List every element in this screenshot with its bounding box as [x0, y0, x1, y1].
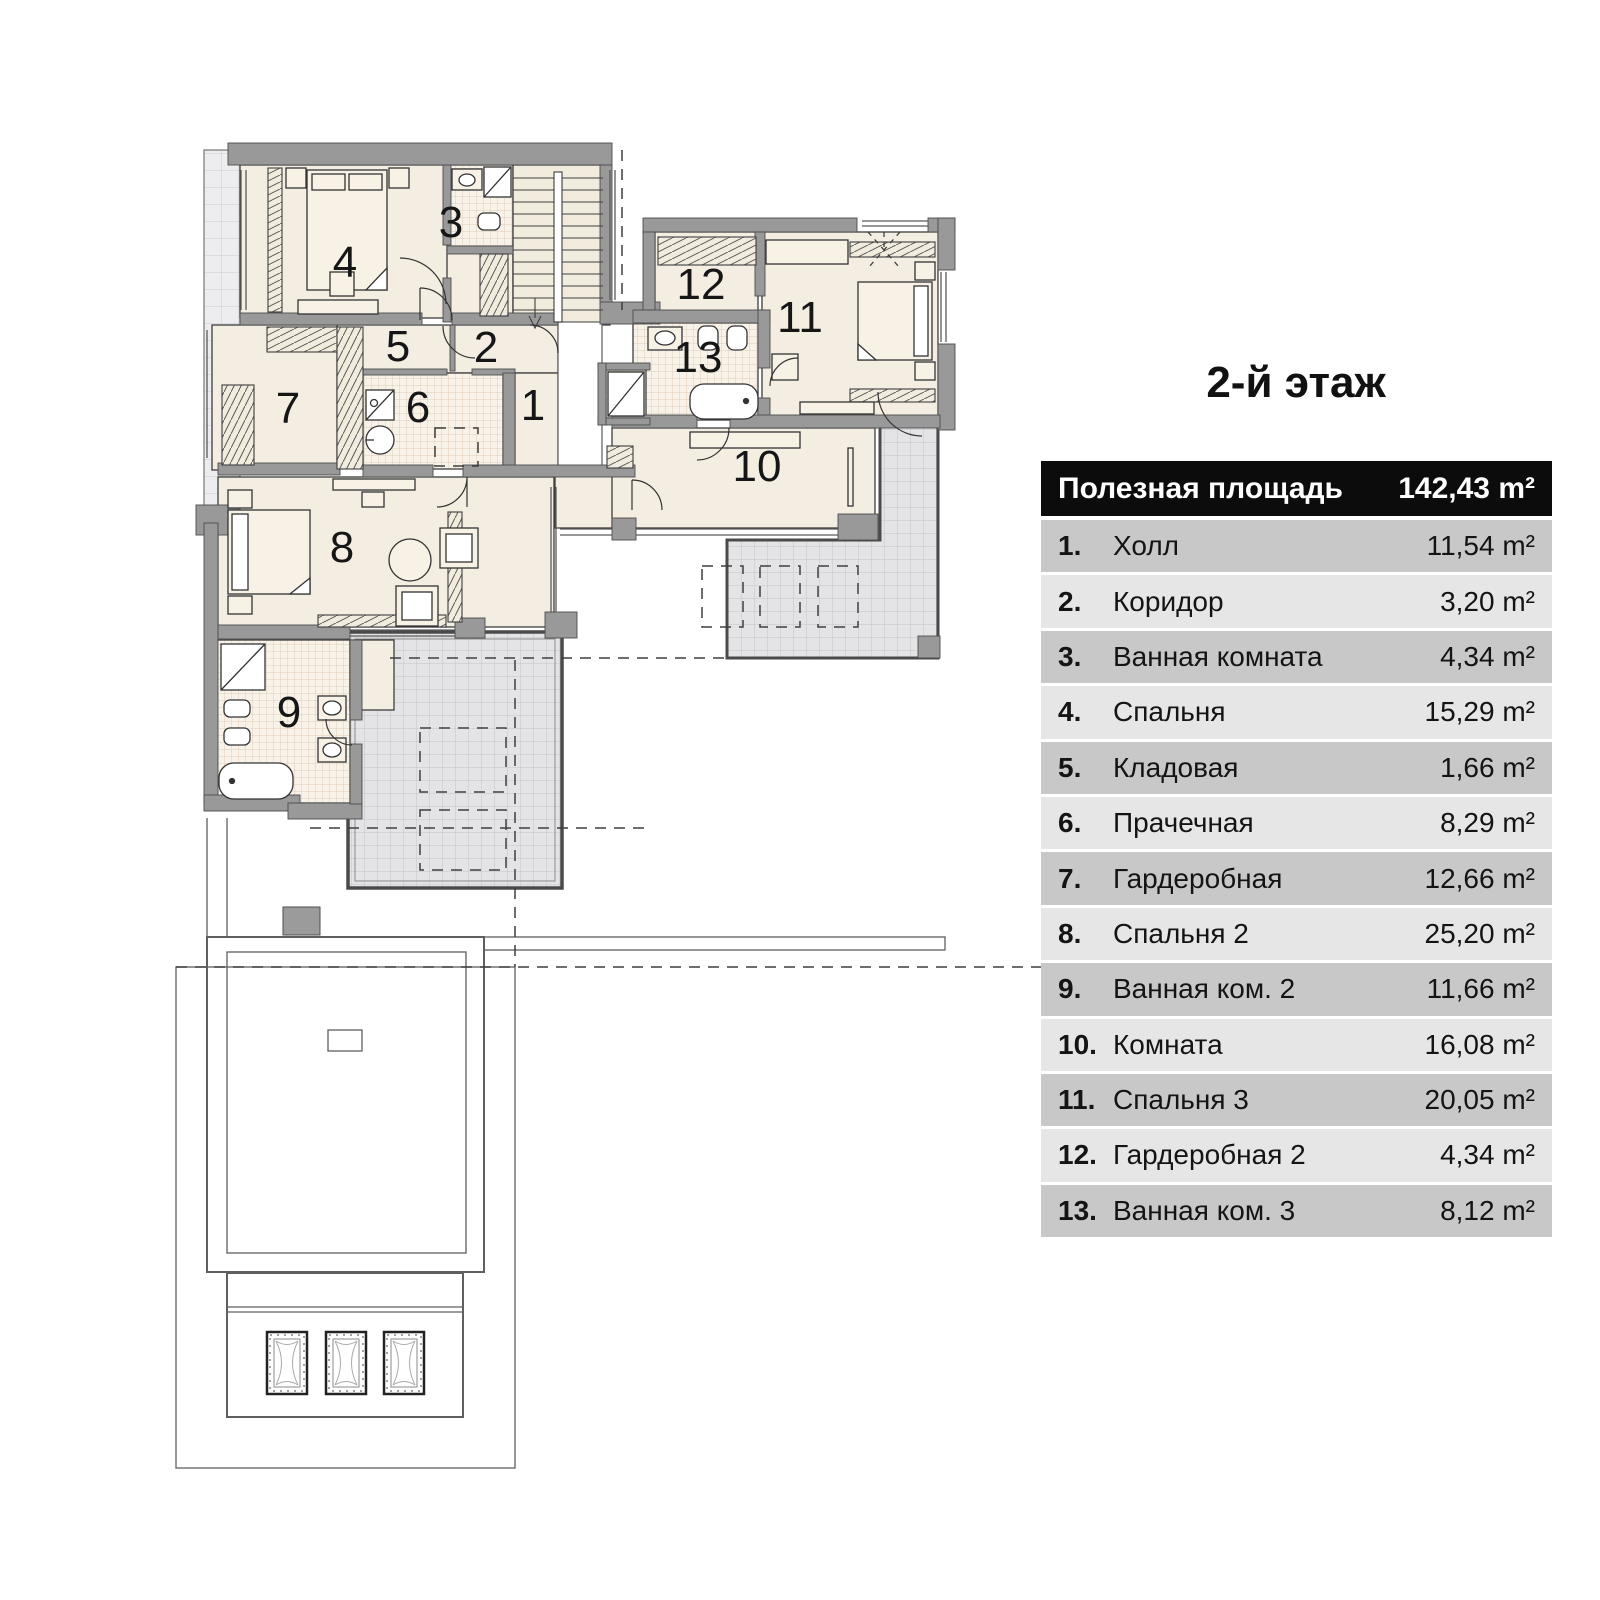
toilet-room9	[224, 728, 250, 745]
label-room-13: 13	[674, 333, 723, 382]
row-name: Гардеробная	[1113, 863, 1425, 895]
room-6-floor	[363, 373, 503, 469]
chimney	[283, 907, 320, 935]
row-name: Комната	[1113, 1029, 1425, 1061]
row-value: 1,66 m²	[1440, 752, 1552, 784]
legend-row-4: 4.Спальня15,29 m²	[1041, 686, 1552, 741]
row-value: 16,08 m²	[1425, 1029, 1553, 1061]
row-value: 4,34 m²	[1440, 641, 1552, 673]
stair-void	[558, 322, 602, 472]
skylights	[267, 1332, 424, 1394]
row-name: Ванная ком. 3	[1113, 1195, 1440, 1227]
row-num: 6.	[1041, 807, 1113, 839]
row-num: 9.	[1041, 973, 1113, 1005]
label-room-7: 7	[276, 384, 300, 433]
legend-row-13: 13.Ванная ком. 38,12 m²	[1041, 1185, 1552, 1240]
label-room-10: 10	[733, 442, 782, 491]
legend-row-6: 6.Прачечная8,29 m²	[1041, 797, 1552, 852]
legend-row-12: 12.Гардеробная 24,34 m²	[1041, 1129, 1552, 1184]
row-num: 3.	[1041, 641, 1113, 673]
label-room-5: 5	[386, 322, 410, 371]
legend-row-9: 9.Ванная ком. 211,66 m²	[1041, 963, 1552, 1018]
legend-row-8: 8.Спальня 225,20 m²	[1041, 908, 1552, 963]
shelf-room8	[333, 479, 415, 490]
row-value: 12,66 m²	[1425, 863, 1553, 895]
row-name: Спальня 2	[1113, 918, 1425, 950]
row-value: 8,29 m²	[1440, 807, 1552, 839]
row-name: Спальня 3	[1113, 1084, 1425, 1116]
legend-row-10: 10.Комната16,08 m²	[1041, 1019, 1552, 1074]
legend-header: Полезная площадь 142,43 m²	[1041, 461, 1552, 516]
legend-row-3: 3.Ванная комната4,34 m²	[1041, 631, 1552, 686]
label-room-6: 6	[406, 383, 430, 432]
legend-header-value: 142,43 m²	[1398, 472, 1535, 506]
row-value: 20,05 m²	[1425, 1084, 1553, 1116]
bench-room11	[800, 402, 874, 414]
row-num: 7.	[1041, 863, 1113, 895]
toilet-room3	[478, 213, 500, 230]
label-room-3: 3	[439, 198, 463, 247]
table-room8	[389, 539, 431, 581]
legend-row-5: 5.Кладовая1,66 m²	[1041, 742, 1552, 797]
label-room-8: 8	[330, 523, 354, 572]
row-num: 5.	[1041, 752, 1113, 784]
row-value: 8,12 m²	[1440, 1195, 1552, 1227]
legend-row-1: 1.Холл11,54 m²	[1041, 520, 1552, 575]
row-value: 4,34 m²	[1440, 1139, 1552, 1171]
row-num: 13.	[1041, 1195, 1113, 1227]
shelf-room11	[766, 240, 848, 264]
label-room-11: 11	[777, 293, 823, 342]
row-name: Кладовая	[1113, 752, 1440, 784]
row-name: Спальня	[1113, 696, 1425, 728]
row-num: 10.	[1041, 1029, 1113, 1061]
row-value: 11,66 m²	[1427, 973, 1552, 1005]
label-room-12: 12	[677, 260, 726, 309]
row-value: 25,20 m²	[1425, 918, 1553, 950]
row-num: 11.	[1041, 1084, 1113, 1116]
row-num: 8.	[1041, 918, 1113, 950]
row-value: 3,20 m²	[1440, 586, 1552, 618]
row-num: 2.	[1041, 586, 1113, 618]
label-room-2: 2	[474, 323, 498, 372]
row-name: Ванная комната	[1113, 641, 1440, 673]
desk-room4	[298, 300, 378, 314]
row-value: 15,29 m²	[1425, 696, 1553, 728]
bidet-room9	[224, 700, 250, 717]
row-name: Прачечная	[1113, 807, 1440, 839]
row-name: Ванная ком. 2	[1113, 973, 1427, 1005]
tv-room10	[848, 448, 853, 506]
rooms-5-2-floor	[337, 325, 558, 373]
legend-row-11: 11.Спальня 320,05 m²	[1041, 1074, 1552, 1129]
row-name: Коридор	[1113, 586, 1440, 618]
legend-table: Полезная площадь 142,43 m² 1.Холл11,54 m…	[1041, 461, 1552, 1240]
row-num: 4.	[1041, 696, 1113, 728]
legend-row-2: 2.Коридор3,20 m²	[1041, 575, 1552, 630]
row-name: Гардеробная 2	[1113, 1139, 1440, 1171]
legend-row-7: 7.Гардеробная12,66 m²	[1041, 852, 1552, 907]
row-value: 11,54 m²	[1427, 530, 1552, 562]
legend-header-label: Полезная площадь	[1058, 472, 1343, 506]
row-name: Холл	[1113, 530, 1427, 562]
label-room-1: 1	[521, 381, 545, 430]
bidet-room13	[727, 326, 747, 350]
page-title: 2-й этаж	[1046, 358, 1546, 408]
row-num: 1.	[1041, 530, 1113, 562]
label-room-4: 4	[333, 238, 357, 287]
label-room-9: 9	[277, 688, 301, 737]
row-num: 12.	[1041, 1139, 1113, 1171]
